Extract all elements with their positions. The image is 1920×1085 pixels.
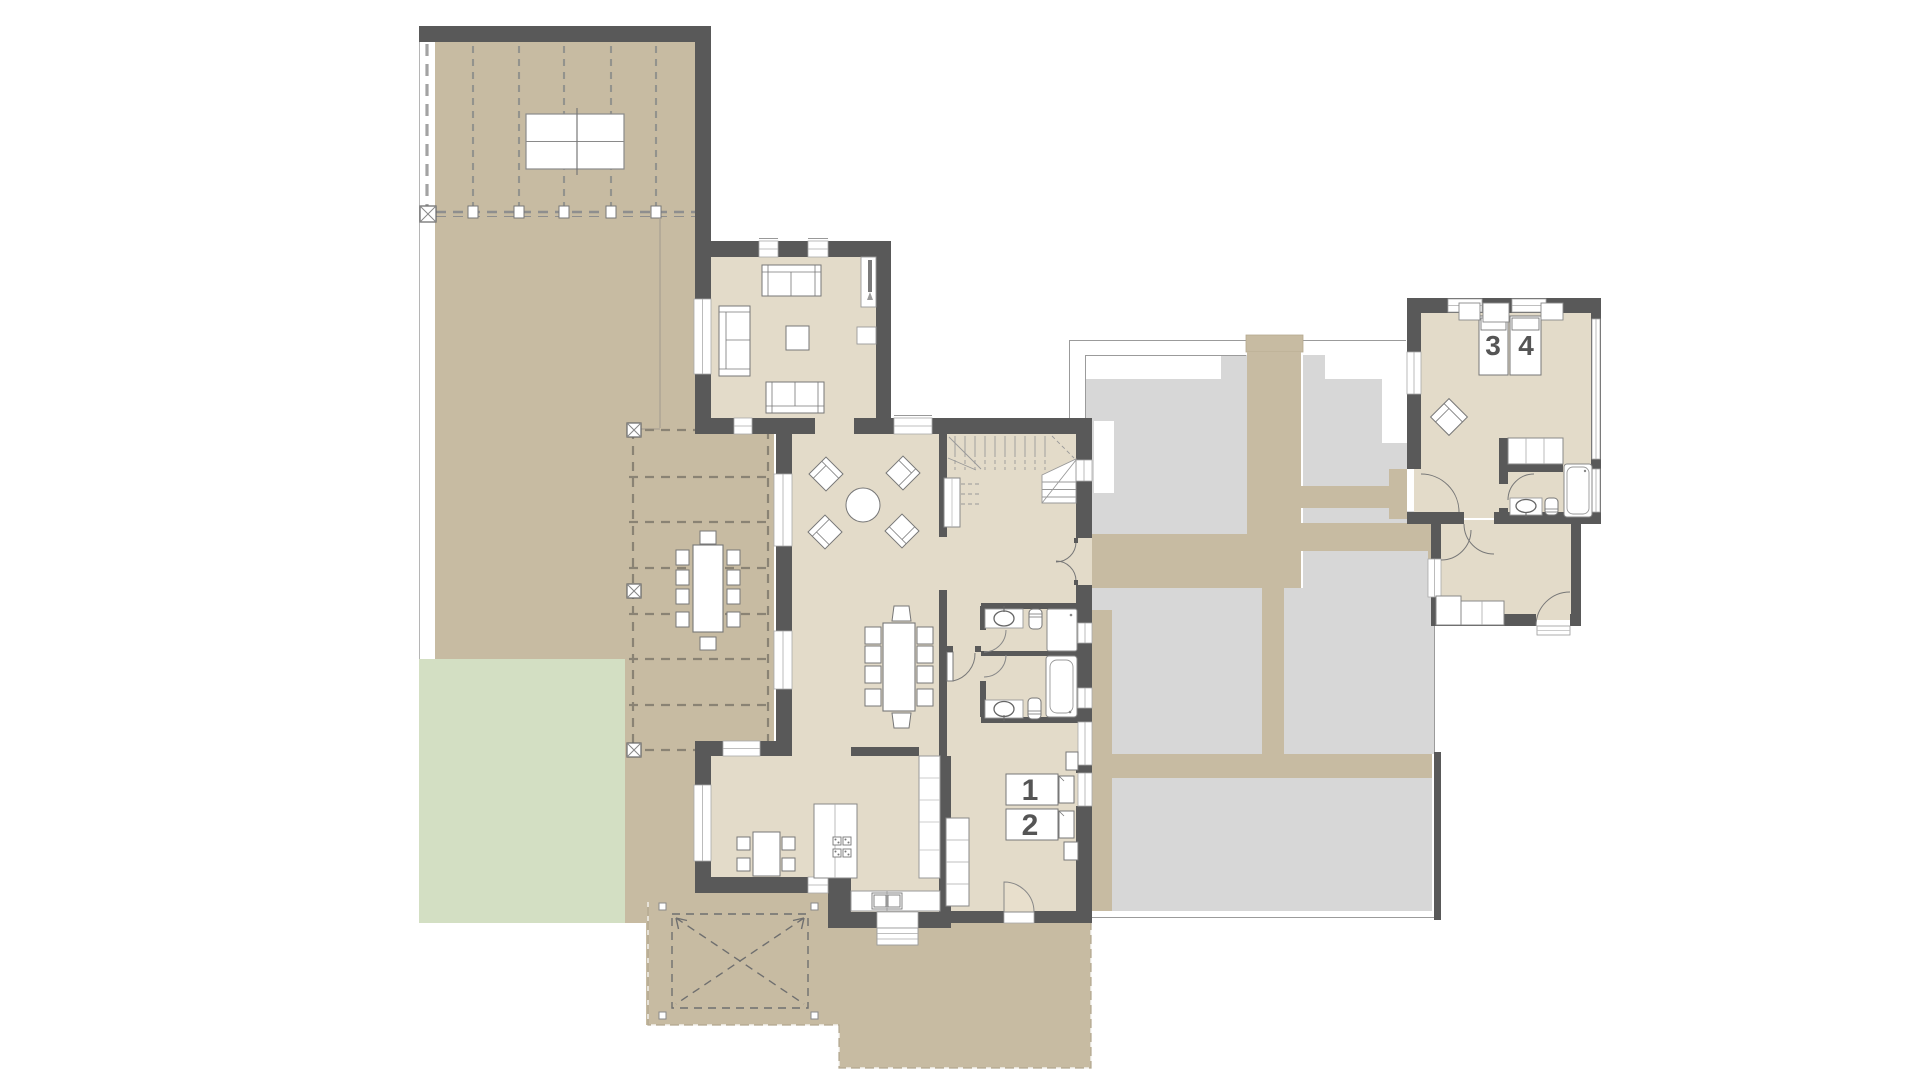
- svg-text:1: 1: [1022, 774, 1039, 807]
- svg-text:4: 4: [1518, 330, 1534, 361]
- svg-text:3: 3: [1485, 330, 1501, 361]
- svg-text:2: 2: [1022, 809, 1039, 842]
